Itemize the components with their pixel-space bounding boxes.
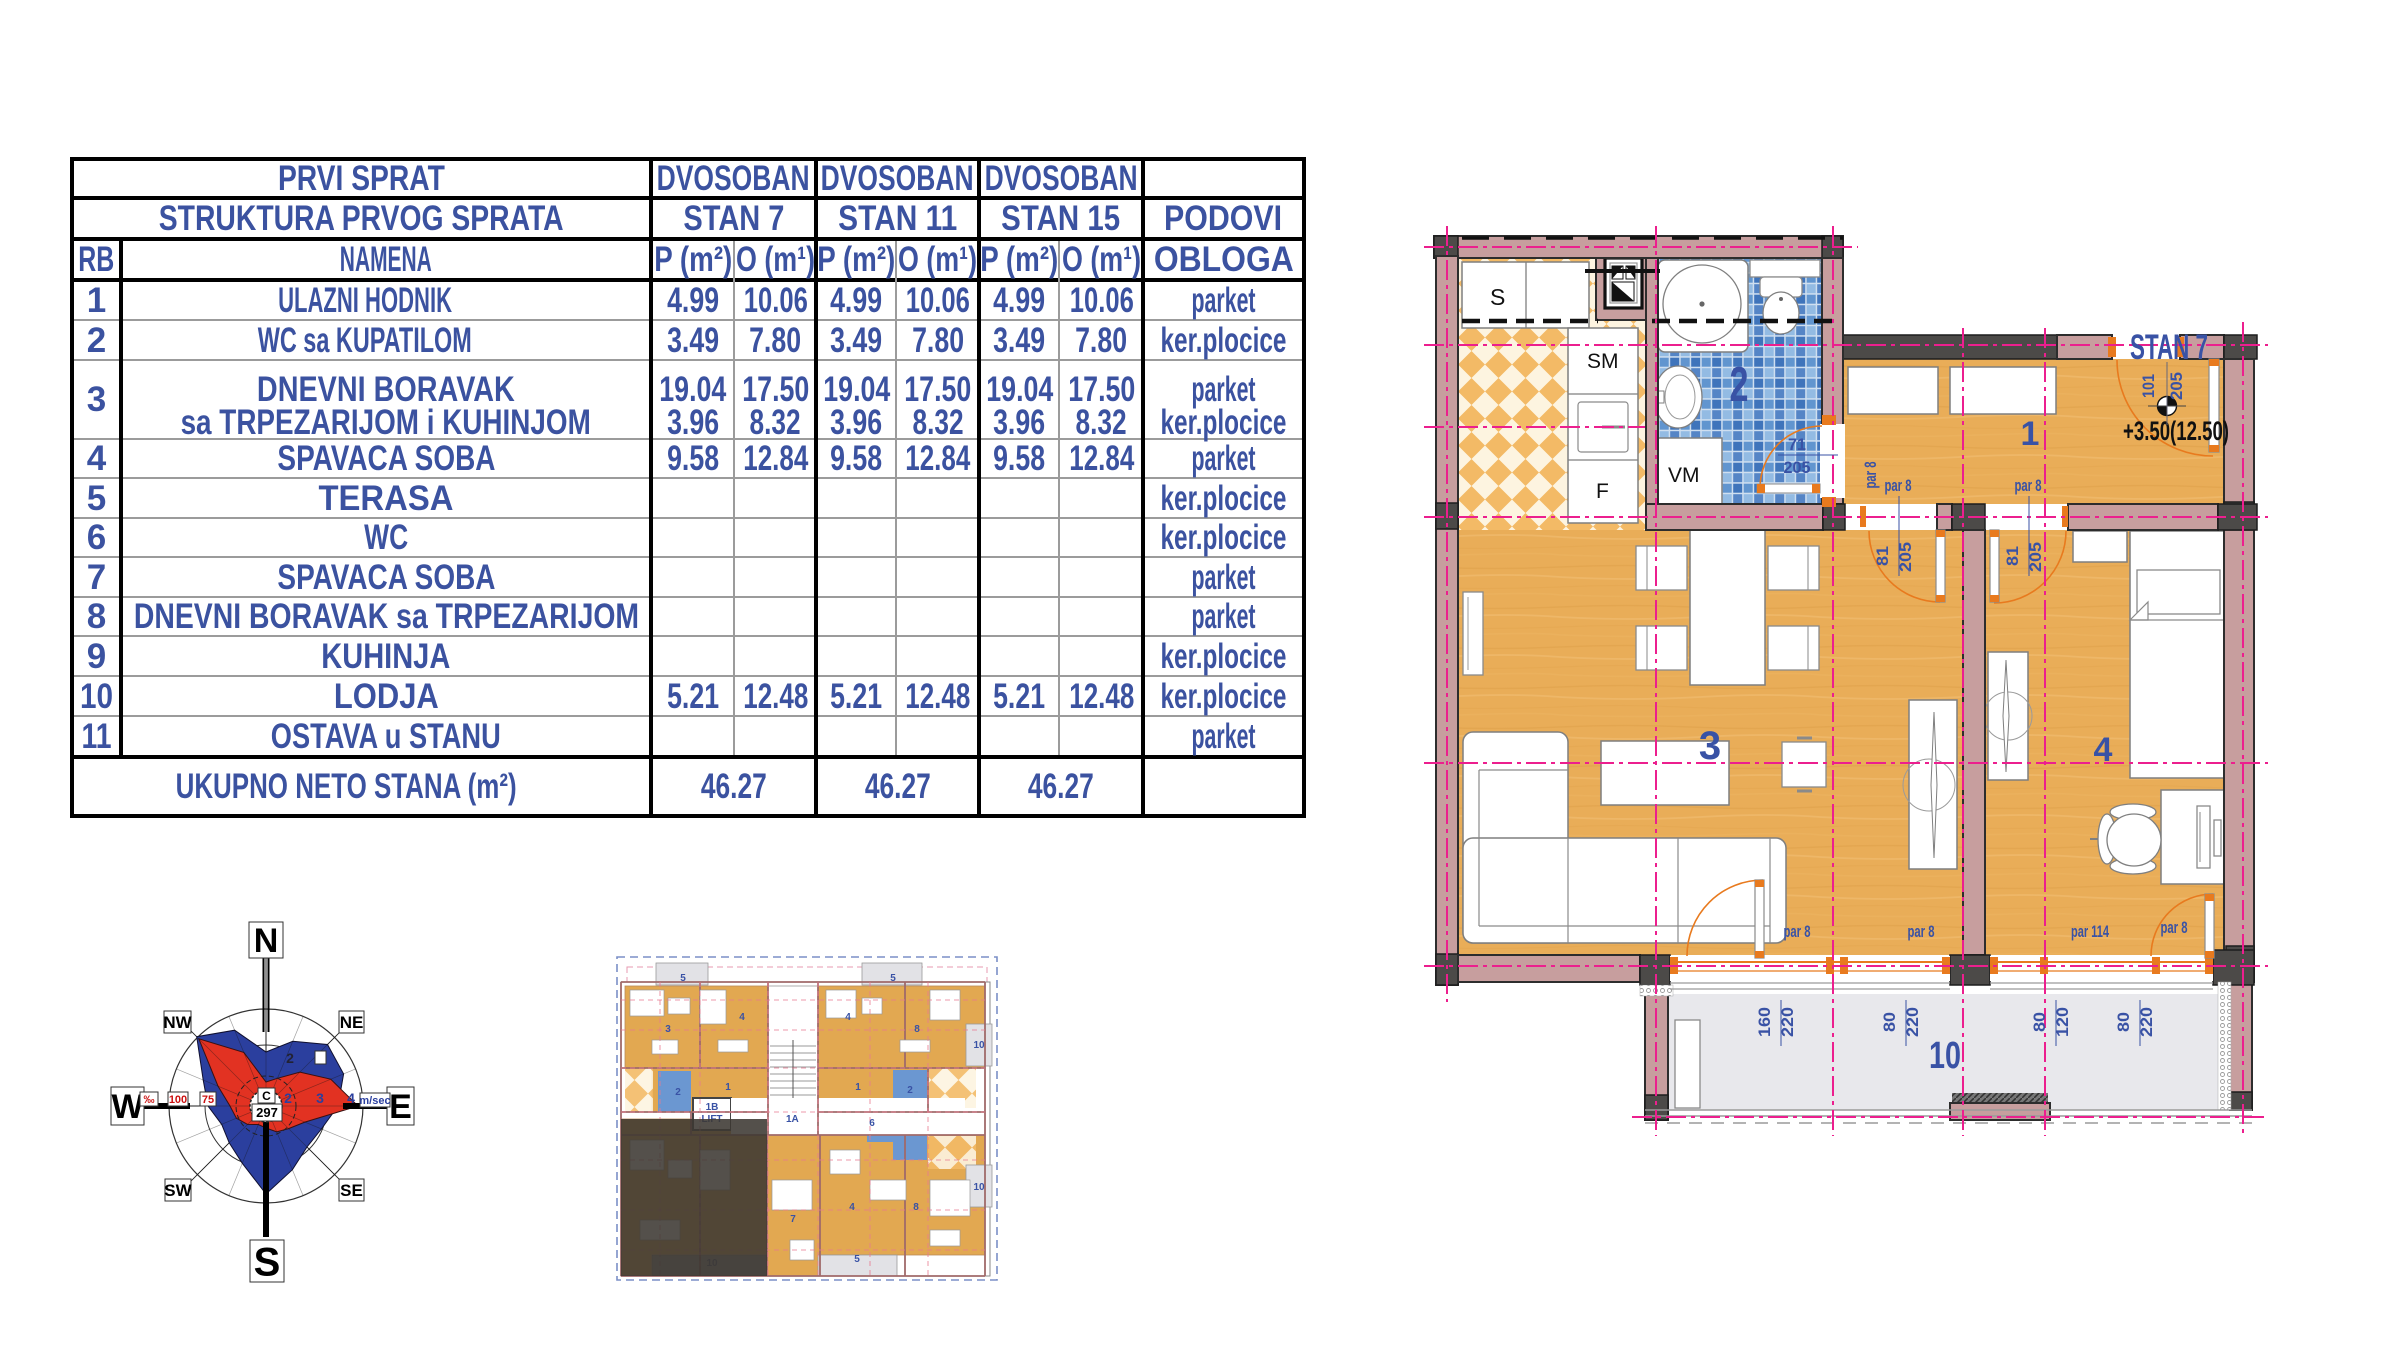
svg-text:1: 1	[855, 1082, 861, 1093]
svg-text:C: C	[262, 1089, 271, 1103]
svg-text:71: 71	[1788, 435, 1806, 454]
svg-text:+3.50(12.50): +3.50(12.50)	[2123, 416, 2229, 446]
svg-text:SW: SW	[164, 1181, 192, 1200]
svg-text:5: 5	[890, 973, 896, 984]
svg-text:N: N	[254, 922, 279, 960]
svg-text:par 8: par 8	[1908, 922, 1935, 941]
svg-text:1: 1	[725, 1082, 731, 1093]
svg-text:220: 220	[1903, 1007, 1922, 1037]
svg-text:10: 10	[1929, 1035, 1961, 1077]
svg-text:NW: NW	[163, 1013, 192, 1032]
svg-text:5: 5	[854, 1254, 860, 1265]
svg-text:‰: ‰	[144, 1094, 155, 1106]
svg-text:4: 4	[2094, 731, 2113, 769]
svg-text:101: 101	[2139, 374, 2158, 398]
svg-text:205: 205	[1784, 458, 1811, 477]
svg-text:205: 205	[2167, 372, 2186, 400]
svg-text:m/sec: m/sec	[359, 1095, 390, 1107]
svg-text:2: 2	[286, 1050, 294, 1066]
svg-text:SE: SE	[340, 1181, 363, 1200]
svg-text:NE: NE	[340, 1013, 364, 1032]
svg-text:SM: SM	[1587, 350, 1619, 373]
svg-text:par 8: par 8	[1885, 476, 1912, 495]
svg-text:8: 8	[913, 1202, 919, 1213]
svg-text:100: 100	[169, 1094, 187, 1106]
svg-text:par 8: par 8	[2161, 918, 2188, 937]
svg-text:75: 75	[202, 1094, 214, 1106]
svg-text:4: 4	[845, 1012, 851, 1023]
svg-text:par 8: par 8	[2015, 476, 2042, 495]
svg-text:3: 3	[1699, 724, 1721, 768]
svg-text:7: 7	[790, 1214, 796, 1225]
svg-text:par 8: par 8	[1861, 462, 1880, 489]
svg-text:4: 4	[347, 1090, 355, 1106]
svg-text:4: 4	[739, 1012, 745, 1023]
svg-text:2: 2	[284, 1090, 292, 1106]
svg-text:2: 2	[907, 1085, 913, 1096]
svg-text:5: 5	[680, 973, 686, 984]
svg-text:220: 220	[1778, 1007, 1797, 1037]
svg-text:S: S	[1490, 284, 1505, 310]
svg-text:VM: VM	[1668, 464, 1700, 487]
svg-text:10: 10	[973, 1040, 985, 1051]
svg-text:80: 80	[1880, 1012, 1899, 1032]
svg-text:297: 297	[256, 1105, 278, 1120]
svg-text:160: 160	[1755, 1007, 1774, 1037]
svg-text:220: 220	[2137, 1007, 2156, 1037]
svg-text:81: 81	[2003, 546, 2022, 566]
svg-text:3: 3	[665, 1024, 671, 1035]
svg-text:1: 1	[2021, 415, 2040, 453]
svg-text:S: S	[254, 1240, 281, 1284]
svg-text:E: E	[389, 1088, 412, 1126]
svg-text:205: 205	[2026, 542, 2045, 572]
svg-text:par 8: par 8	[1784, 922, 1811, 941]
svg-text:1A: 1A	[786, 1114, 799, 1125]
svg-text:6: 6	[869, 1118, 875, 1129]
svg-text:80: 80	[2114, 1012, 2133, 1032]
svg-text:par 114: par 114	[2071, 922, 2109, 941]
svg-text:205: 205	[1896, 542, 1915, 572]
svg-text:10: 10	[973, 1182, 985, 1193]
svg-text:2: 2	[675, 1087, 681, 1098]
svg-text:3: 3	[316, 1090, 324, 1106]
svg-text:120: 120	[2053, 1007, 2072, 1037]
svg-text:STAN 7: STAN 7	[2130, 328, 2208, 367]
svg-text:80: 80	[2030, 1012, 2049, 1032]
svg-text:2: 2	[1730, 358, 1749, 412]
svg-text:81: 81	[1873, 546, 1892, 566]
svg-text:8: 8	[914, 1024, 920, 1035]
svg-text:4: 4	[849, 1202, 855, 1213]
svg-text:F: F	[1596, 480, 1609, 503]
